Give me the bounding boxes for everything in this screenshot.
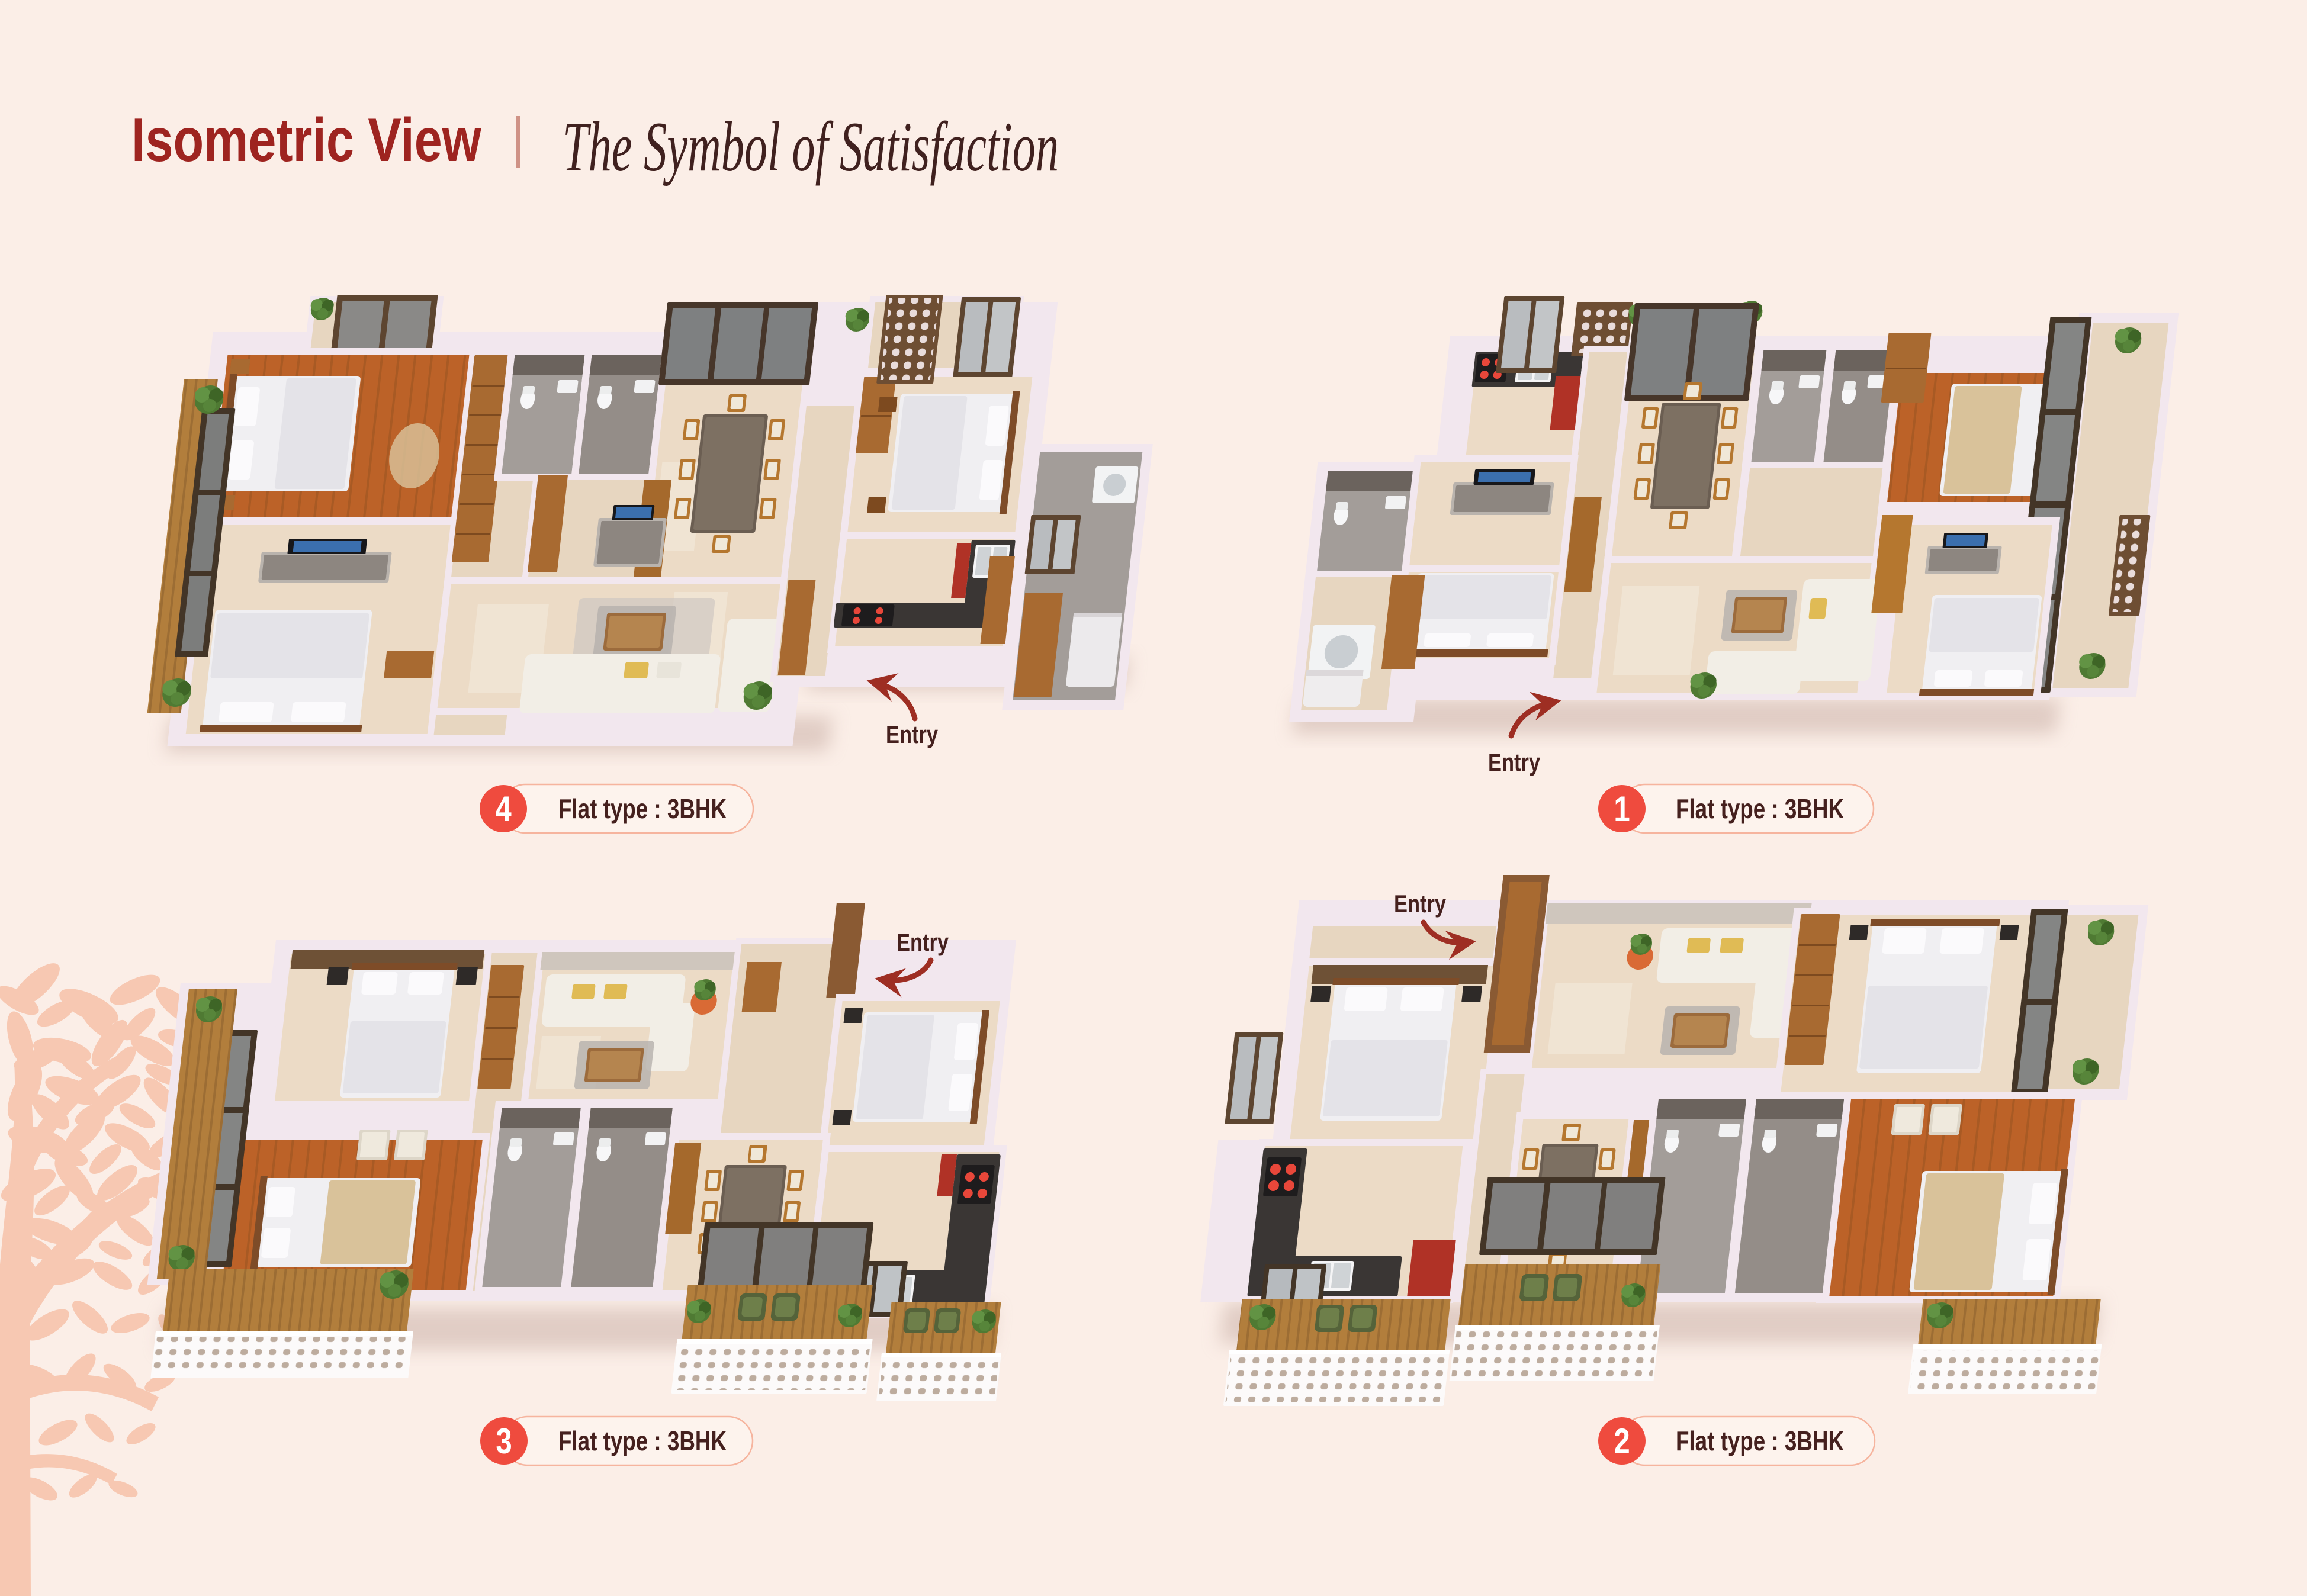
svg-text:Entry: Entry <box>1488 749 1541 777</box>
svg-text:Flat type : 3BHK: Flat type : 3BHK <box>1676 1426 1844 1456</box>
svg-text:1: 1 <box>1614 789 1630 829</box>
svg-text:Flat type : 3BHK: Flat type : 3BHK <box>1676 793 1844 824</box>
svg-text:3: 3 <box>496 1421 512 1461</box>
svg-text:4: 4 <box>495 789 512 829</box>
svg-text:The Symbol of Satisfaction: The Symbol of Satisfaction <box>563 107 1059 186</box>
svg-text:Entry: Entry <box>897 929 949 957</box>
svg-text:Flat type : 3BHK: Flat type : 3BHK <box>558 1426 727 1456</box>
svg-text:Flat type : 3BHK: Flat type : 3BHK <box>558 793 727 824</box>
svg-text:Isometric View: Isometric View <box>131 106 481 175</box>
svg-text:Entry: Entry <box>886 721 939 749</box>
svg-text:Entry: Entry <box>1394 890 1447 918</box>
svg-text:2: 2 <box>1614 1421 1630 1461</box>
